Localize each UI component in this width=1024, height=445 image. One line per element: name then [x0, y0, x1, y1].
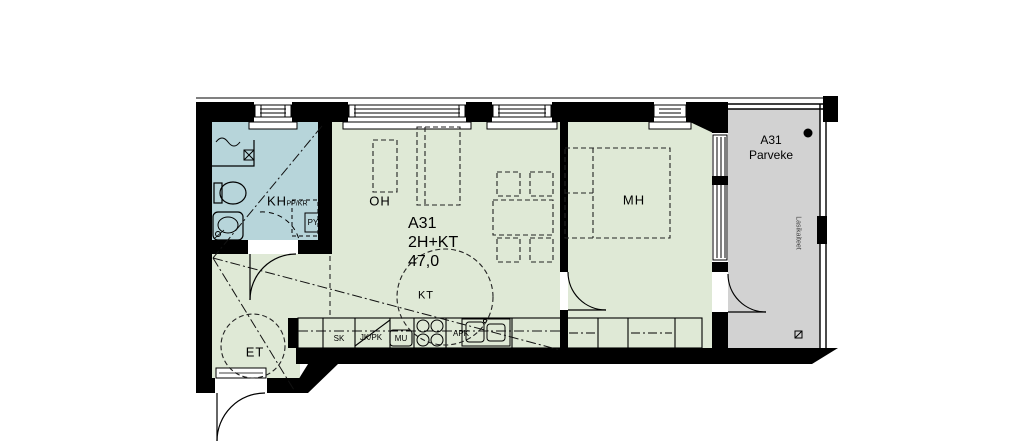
laundry-label: PY: [308, 219, 319, 227]
railing-note: Lasikaiteet: [795, 216, 802, 249]
bedroom-floor: [568, 122, 712, 348]
window-bathroom: [249, 102, 297, 129]
room-label-living: OH: [369, 195, 391, 208]
kitchen-label-apk: APK: [453, 330, 469, 338]
room-label-hall: ET: [246, 346, 265, 359]
floorplan: KH ET OH MH KT A31 2H+KT 47,0 PP/KR PY S…: [0, 0, 1024, 445]
window-balcony: [712, 133, 728, 262]
balcony-label: Parveke: [749, 148, 793, 163]
room-label-bathroom: KH: [267, 195, 287, 208]
kitchen-label-mu: MU: [395, 335, 407, 343]
room-label-bedroom: MH: [623, 194, 645, 207]
room-label-kitchen: KT: [418, 291, 434, 302]
kitchen-label-jkpk: JK/PK: [360, 334, 382, 342]
entrance-door: [215, 368, 267, 441]
window-living-1: [343, 102, 471, 129]
hall-floor: [212, 240, 332, 348]
apartment-type: 2H+KT: [408, 233, 458, 252]
apartment-id: A31: [408, 214, 458, 233]
apartment-area: 47,0: [408, 252, 458, 271]
kitchen-label-sk: SK: [334, 335, 345, 343]
balcony-id: A31: [749, 133, 793, 148]
window-bedroom: [649, 102, 691, 129]
floorplan-linework: [0, 0, 1024, 445]
balcony-column-icon: [804, 129, 813, 138]
washer-dryer-label: PP/KR: [286, 201, 307, 208]
apartment-info: A31 2H+KT 47,0: [408, 214, 458, 271]
railing-post: [817, 216, 827, 244]
bathroom-floor: [212, 122, 318, 240]
window-living-2: [487, 102, 557, 129]
balcony-info: A31 Parveke: [749, 133, 793, 163]
